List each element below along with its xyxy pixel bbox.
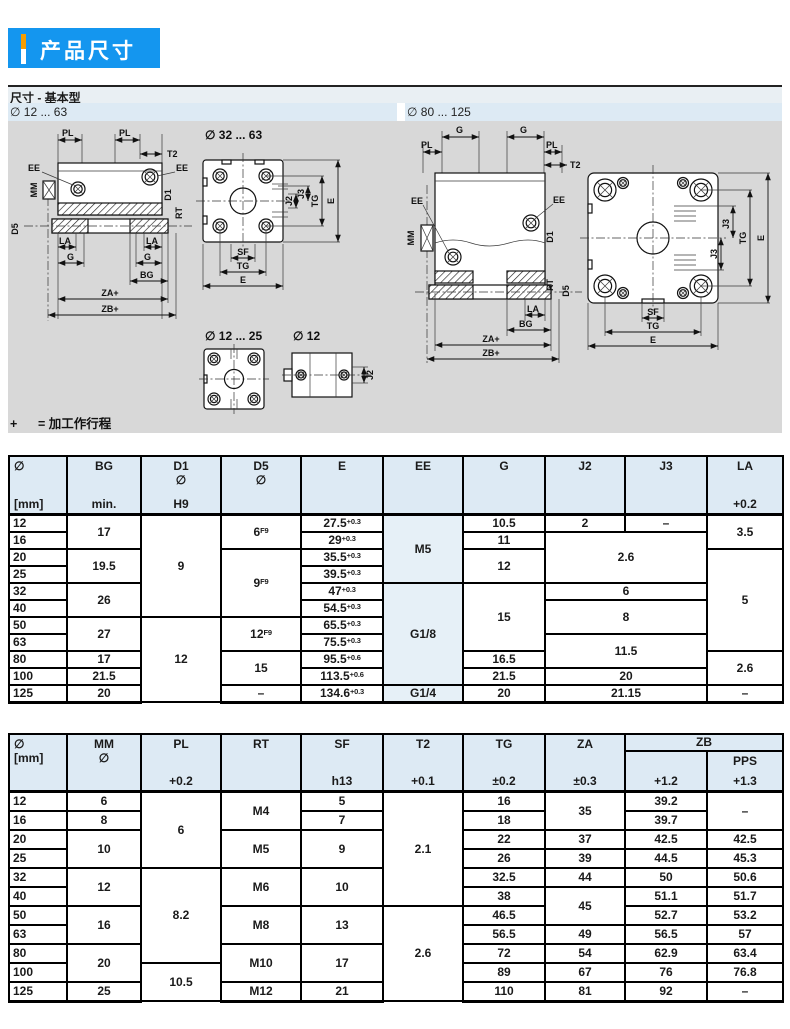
dimensions-table-basic: ∅[mm]BGmin.D1∅H9D5∅EEEGJ2J3LA+0.2121796F… — [8, 455, 784, 704]
column-header: LA+0.2 — [707, 456, 783, 514]
svg-text:E: E — [650, 335, 656, 345]
table-row: 12520–134.6+0.3G1/42021.15– — [9, 685, 783, 703]
table-cell: M10 — [221, 944, 301, 982]
screw-icon — [618, 178, 629, 189]
table-cell: 57 — [707, 925, 783, 944]
table-cell: 47+0.3 — [301, 583, 383, 600]
svg-text:G: G — [67, 252, 74, 262]
table-cell: 95.5+0.6 — [301, 651, 383, 668]
column-header: +1.2 — [625, 751, 707, 791]
svg-text:MM: MM — [406, 231, 416, 246]
svg-text:LA: LA — [527, 304, 539, 314]
table-cell: 42.5 — [707, 830, 783, 849]
column-header: BGmin. — [67, 456, 141, 514]
table-cell: 5 — [707, 549, 783, 651]
table-cell: 20 — [9, 830, 67, 849]
table-cell: 12 — [9, 791, 67, 811]
table-cell: 27 — [67, 617, 141, 651]
table-cell: 75.5+0.3 — [301, 634, 383, 651]
svg-text:J2: J2 — [284, 196, 294, 206]
table-cell: 52.7 — [625, 906, 707, 925]
column-header: D1∅H9 — [141, 456, 221, 514]
svg-text:EE: EE — [28, 163, 40, 173]
table-cell: 62.9 — [625, 944, 707, 963]
table-cell: 22 — [463, 830, 545, 849]
table-cell: 9F9 — [221, 549, 301, 617]
table-cell: 11 — [463, 532, 545, 549]
svg-text:EE: EE — [553, 195, 565, 205]
table2-container: ∅[mm]MM∅PL+0.2RTSFh13T2+0.1TG±0.2ZA±0.3Z… — [8, 733, 784, 1003]
drawing-side-section-80-125: G G PL PL T2 EE EE MM D1 RT D5 LA — [407, 125, 592, 363]
table-cell: 56.5 — [463, 925, 545, 944]
column-header: SFh13 — [301, 734, 383, 791]
plus-sign: + — [10, 417, 38, 431]
drawing-front-view-32-63: J2 J3 TG E SF TG E — [198, 154, 393, 304]
table-cell: 6 — [545, 583, 707, 600]
svg-text:J2: J2 — [365, 370, 375, 380]
svg-text:J3: J3 — [709, 249, 719, 259]
table-cell: 29+0.3 — [301, 532, 383, 549]
table-cell: 51.7 — [707, 887, 783, 906]
table-row: 1266M452.1163539.2– — [9, 791, 783, 811]
stroke-note: += 加工作行程 — [10, 413, 111, 432]
table-cell: 20 — [67, 944, 141, 982]
page-title-box: 产品尺寸 — [8, 28, 160, 68]
table-cell: M12 — [221, 982, 301, 1002]
table-cell: 17 — [67, 651, 141, 668]
column-header: ∅[mm] — [9, 734, 67, 791]
table-cell: 45.3 — [707, 849, 783, 868]
table-cell: 113.5+0.6 — [301, 668, 383, 685]
table-cell: – — [221, 685, 301, 703]
table-cell: 38 — [463, 887, 545, 906]
table-cell: 45 — [545, 887, 625, 925]
drawings-area: PL PL T2 EE EE MM D1 RT D5 LA LA — [8, 121, 782, 433]
column-header: PL+0.2 — [141, 734, 221, 791]
svg-text:LA: LA — [59, 236, 71, 246]
table-cell: 20 — [463, 685, 545, 703]
svg-text:ZB+: ZB+ — [101, 304, 118, 314]
drawing-label-single: ∅ 12 — [293, 329, 320, 343]
table-cell: 35 — [545, 791, 625, 830]
note-text: = 加工作行程 — [38, 417, 111, 431]
table-cell: 10.5 — [141, 963, 221, 1002]
table-cell: 53.2 — [707, 906, 783, 925]
column-header: J2 — [545, 456, 625, 514]
svg-text:PL: PL — [546, 140, 558, 150]
table-cell: 39.2 — [625, 791, 707, 811]
table-cell: 50 — [625, 868, 707, 887]
table-cell: 40 — [9, 600, 67, 617]
svg-text:SF: SF — [647, 307, 659, 317]
catalog-page: 产品尺寸 尺寸 - 基本型 ∅ 12 ... 63 ∅ 80 ... 125 P… — [0, 0, 790, 1029]
table-cell: 32 — [9, 868, 67, 887]
table-cell: 63 — [9, 634, 67, 651]
table-cell: 8.2 — [141, 868, 221, 963]
table-cell: 12 — [67, 868, 141, 906]
table-cell: 2.6 — [545, 532, 707, 583]
table-cell: 6 — [67, 791, 141, 811]
table-cell: 16.5 — [463, 651, 545, 668]
table-cell: 26 — [67, 583, 141, 617]
mm-thread-symbol — [421, 225, 433, 251]
table-cell: 125 — [9, 982, 67, 1002]
table-cell: 17 — [67, 514, 141, 549]
svg-text:SF: SF — [237, 247, 249, 257]
table-cell: 19.5 — [67, 549, 141, 583]
screw-icon — [339, 370, 349, 380]
svg-text:BG: BG — [140, 270, 154, 280]
table-cell: – — [625, 514, 707, 532]
table-cell: 8 — [545, 600, 707, 634]
table-cell: – — [707, 982, 783, 1002]
table-cell: 9 — [301, 830, 383, 868]
table-cell: 44 — [545, 868, 625, 887]
table-cell: 20 — [545, 668, 707, 685]
range-band-left: ∅ 12 ... 63 — [8, 103, 397, 121]
svg-text:ZB+: ZB+ — [482, 348, 499, 358]
table-cell: 2.6 — [383, 906, 463, 1002]
table-cell: 51.1 — [625, 887, 707, 906]
table-cell: 12 — [463, 549, 545, 583]
table-cell: 5 — [301, 791, 383, 811]
table-cell: 50 — [9, 617, 67, 634]
mm-thread-symbol — [43, 181, 55, 199]
table-cell: 65.5+0.3 — [301, 617, 383, 634]
table-cell: – — [707, 685, 783, 703]
table1-container: ∅[mm]BGmin.D1∅H9D5∅EEEGJ2J3LA+0.2121796F… — [8, 455, 784, 704]
section-title-band: 尺寸 - 基本型 — [8, 85, 782, 103]
table-cell: 54.5+0.3 — [301, 600, 383, 617]
svg-text:G: G — [144, 252, 151, 262]
svg-text:PL: PL — [62, 128, 74, 138]
table-cell: 10 — [301, 868, 383, 906]
drawing-front-view-12-25 — [200, 345, 280, 411]
table-cell: 7 — [301, 811, 383, 830]
screw-icon — [296, 370, 306, 380]
svg-text:LA: LA — [146, 236, 158, 246]
range-band-right: ∅ 80 ... 125 — [405, 103, 782, 121]
table-row: 5016M8132.646.552.753.2 — [9, 906, 783, 925]
table-cell: 42.5 — [625, 830, 707, 849]
svg-text:PL: PL — [421, 140, 433, 150]
svg-text:ZA+: ZA+ — [101, 288, 118, 298]
table-cell: 27.5+0.3 — [301, 514, 383, 532]
svg-text:E: E — [756, 235, 766, 241]
table-cell: 25 — [9, 849, 67, 868]
table-cell: 44.5 — [625, 849, 707, 868]
table-cell: 35.5+0.3 — [301, 549, 383, 566]
table-cell: 72 — [463, 944, 545, 963]
table-cell: – — [707, 791, 783, 830]
table-cell: G1/4 — [383, 685, 463, 703]
svg-text:MM: MM — [29, 183, 39, 198]
table-cell: 134.6+0.3 — [301, 685, 383, 703]
table-cell: 12 — [9, 514, 67, 532]
table-cell: G1/8 — [383, 583, 463, 685]
table-cell: 26 — [463, 849, 545, 868]
table-cell: 12 — [141, 617, 221, 703]
table-cell: 92 — [625, 982, 707, 1002]
accent-bar-orange — [21, 34, 26, 49]
svg-text:RT: RT — [545, 279, 555, 291]
svg-text:G: G — [456, 125, 463, 135]
column-header: G — [463, 456, 545, 514]
table-cell: M6 — [221, 868, 301, 906]
table-cell: 12F9 — [221, 617, 301, 651]
svg-text:ZA+: ZA+ — [482, 334, 499, 344]
table-cell: 11.5 — [545, 634, 707, 668]
table-cell: 16 — [9, 811, 67, 830]
table-cell: 21.15 — [545, 685, 707, 703]
svg-text:EE: EE — [411, 196, 423, 206]
table-cell: 125 — [9, 685, 67, 703]
svg-text:D1: D1 — [163, 189, 173, 201]
column-group-header: ZB — [625, 734, 783, 751]
table-cell: 49 — [545, 925, 625, 944]
table-cell: 10.5 — [463, 514, 545, 532]
table-cell: 18 — [463, 811, 545, 830]
table-cell: 63 — [9, 925, 67, 944]
table-cell: 8 — [67, 811, 141, 830]
table-cell: M5 — [383, 514, 463, 583]
svg-text:D5: D5 — [10, 223, 20, 235]
table-cell: 81 — [545, 982, 625, 1002]
table-cell: M5 — [221, 830, 301, 868]
table-cell: 3.5 — [707, 514, 783, 549]
svg-text:D5: D5 — [561, 285, 571, 297]
drawing-side-view-12: J2 — [284, 347, 404, 405]
table-cell: 76.8 — [707, 963, 783, 982]
table-cell: 17 — [301, 944, 383, 982]
table-cell: M4 — [221, 791, 301, 830]
column-header: PPS+1.3 — [707, 751, 783, 791]
table-cell: 16 — [9, 532, 67, 549]
svg-text:J3: J3 — [296, 189, 306, 199]
table-cell: 100 — [9, 668, 67, 685]
table-cell: 15 — [463, 583, 545, 651]
table-cell: 16 — [67, 906, 141, 944]
screw-icon — [618, 288, 629, 299]
dimensions-table-stroke: ∅[mm]MM∅PL+0.2RTSFh13T2+0.1TG±0.2ZA±0.3Z… — [8, 733, 784, 1003]
range-label-large: ∅ 80 ... 125 — [405, 103, 471, 119]
table-cell: 39 — [545, 849, 625, 868]
screw-icon — [678, 288, 689, 299]
table-cell: 110 — [463, 982, 545, 1002]
table-cell: 10 — [67, 830, 141, 868]
table-cell: 13 — [301, 906, 383, 944]
table-cell: M8 — [221, 906, 301, 944]
table-cell: 39.7 — [625, 811, 707, 830]
column-header: T2+0.1 — [383, 734, 463, 791]
table-cell: 100 — [9, 963, 67, 982]
table-cell: 21.5 — [67, 668, 141, 685]
table-cell: 54 — [545, 944, 625, 963]
table-cell: 89 — [463, 963, 545, 982]
table-cell: 37 — [545, 830, 625, 849]
svg-text:RT: RT — [174, 207, 184, 219]
column-header: MM∅ — [67, 734, 141, 791]
table-row: 121796F927.5+0.3M510.52–3.5 — [9, 514, 783, 532]
table-cell: 21 — [301, 982, 383, 1002]
column-header: RT — [221, 734, 301, 791]
table-cell: 21.5 — [463, 668, 545, 685]
table-cell: 25 — [67, 982, 141, 1002]
table-cell: 63.4 — [707, 944, 783, 963]
table-cell: 76 — [625, 963, 707, 982]
column-header: ∅[mm] — [9, 456, 67, 514]
table-cell: 20 — [67, 685, 141, 703]
column-header: J3 — [625, 456, 707, 514]
svg-text:TG: TG — [310, 195, 320, 208]
svg-text:PL: PL — [119, 128, 131, 138]
drawing-label-tiny: ∅ 12 ... 25 — [205, 329, 262, 343]
table-cell: 6F9 — [221, 514, 301, 549]
table-cell: 67 — [545, 963, 625, 982]
svg-text:E: E — [326, 198, 336, 204]
drawing-side-section-12-63: PL PL T2 EE EE MM D1 RT D5 LA LA — [10, 125, 205, 321]
svg-text:E: E — [240, 275, 246, 285]
accent-bar-white — [21, 49, 26, 64]
drawing-front-view-80-125: J3 J3 TG E SF TG E — [578, 148, 783, 363]
range-label-small: ∅ 12 ... 63 — [8, 103, 67, 119]
table-cell: 40 — [9, 887, 67, 906]
table-cell: 2.6 — [707, 651, 783, 685]
table-cell: 80 — [9, 944, 67, 963]
svg-text:J3: J3 — [721, 219, 731, 229]
svg-text:EE: EE — [176, 163, 188, 173]
table-cell: 16 — [463, 791, 545, 811]
table-cell: 32.5 — [463, 868, 545, 887]
column-header: EE — [383, 456, 463, 514]
column-header: E — [301, 456, 383, 514]
table-cell: 56.5 — [625, 925, 707, 944]
table-cell: 80 — [9, 651, 67, 668]
table-cell: 9 — [141, 514, 221, 617]
table-cell: 32 — [9, 583, 67, 600]
svg-text:G: G — [520, 125, 527, 135]
page-title: 产品尺寸 — [40, 35, 136, 65]
svg-text:TG: TG — [738, 232, 748, 245]
svg-text:TG: TG — [237, 261, 250, 271]
svg-text:D1: D1 — [545, 231, 555, 243]
table-cell: 6 — [141, 791, 221, 868]
table-cell: 2 — [545, 514, 625, 532]
table-cell: 46.5 — [463, 906, 545, 925]
svg-text:BG: BG — [519, 319, 533, 329]
column-header: D5∅ — [221, 456, 301, 514]
table-cell: 39.5+0.3 — [301, 566, 383, 583]
column-header: ZA±0.3 — [545, 734, 625, 791]
table-cell: 50 — [9, 906, 67, 925]
svg-text:T2: T2 — [167, 149, 178, 159]
table-cell: 25 — [9, 566, 67, 583]
table-row: 322647+0.3G1/8156 — [9, 583, 783, 600]
svg-text:TG: TG — [647, 321, 660, 331]
table-cell: 2.1 — [383, 791, 463, 906]
column-header: TG±0.2 — [463, 734, 545, 791]
table-cell: 15 — [221, 651, 301, 685]
screw-icon — [678, 178, 689, 189]
drawing-label-mid: ∅ 32 ... 63 — [205, 128, 262, 142]
table-cell: 20 — [9, 549, 67, 566]
table-cell: 50.6 — [707, 868, 783, 887]
